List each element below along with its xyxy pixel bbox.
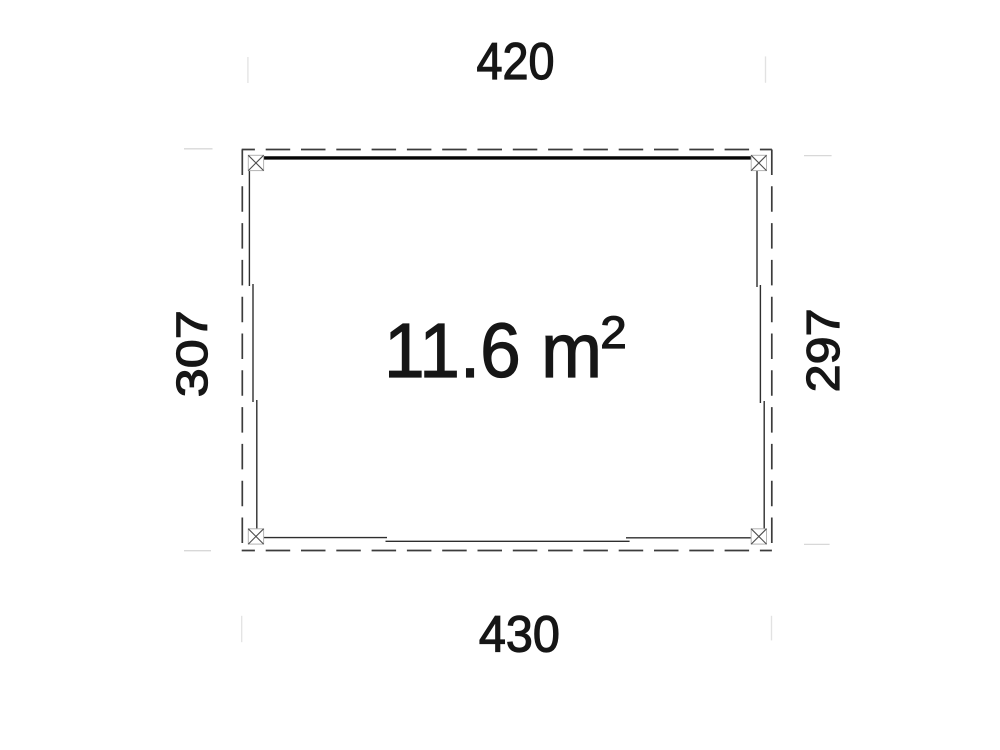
svg-text:297: 297 — [797, 308, 849, 392]
svg-text:11.6 m: 11.6 m — [384, 308, 602, 394]
svg-text:420: 420 — [477, 33, 555, 91]
svg-text:307: 307 — [168, 310, 217, 397]
svg-text:430: 430 — [479, 605, 560, 662]
svg-text:2: 2 — [600, 307, 627, 358]
